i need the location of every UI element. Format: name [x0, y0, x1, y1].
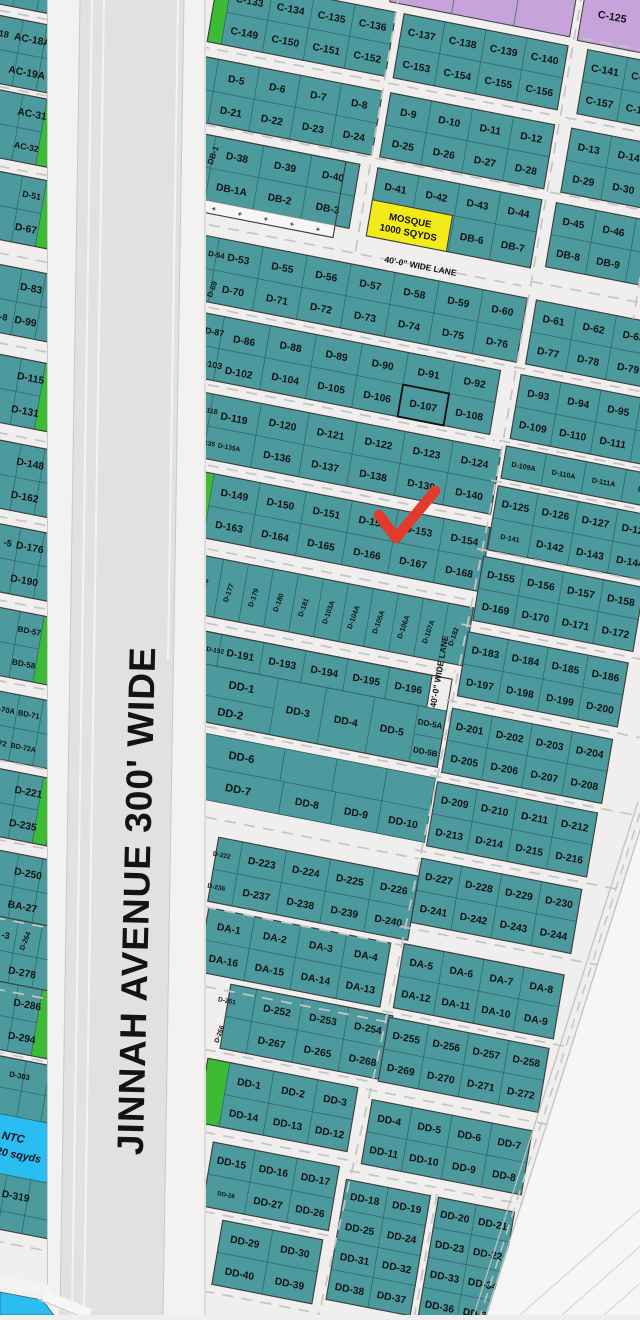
svg-text:-18: -18 — [0, 28, 10, 40]
svg-text:-3: -3 — [1, 930, 11, 941]
svg-text:-5: -5 — [3, 537, 13, 548]
